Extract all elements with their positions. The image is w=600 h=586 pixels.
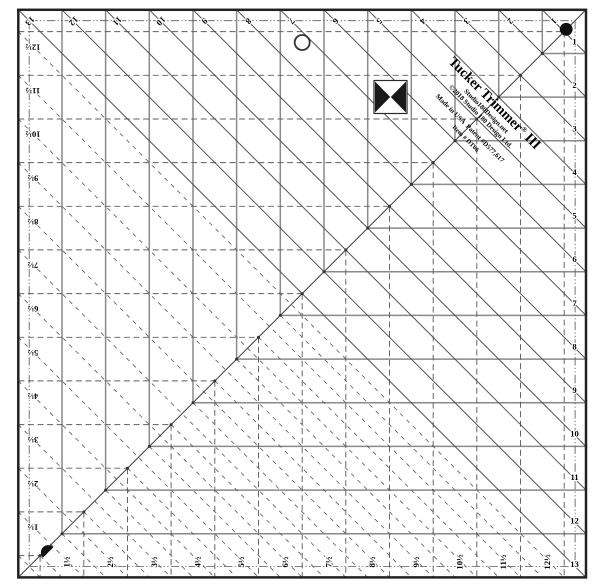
svg-text:3: 3 bbox=[572, 124, 576, 134]
svg-text:4: 4 bbox=[572, 167, 577, 177]
svg-text:3½: 3½ bbox=[149, 556, 159, 567]
svg-text:13: 13 bbox=[570, 559, 579, 569]
svg-text:1: 1 bbox=[572, 37, 576, 47]
svg-text:9½: 9½ bbox=[411, 556, 421, 567]
svg-text:6: 6 bbox=[572, 254, 577, 264]
svg-text:11½: 11½ bbox=[498, 554, 508, 569]
svg-text:12½: 12½ bbox=[25, 42, 41, 52]
svg-text:12: 12 bbox=[570, 516, 579, 526]
svg-text:4½: 4½ bbox=[27, 392, 38, 402]
svg-text:5½: 5½ bbox=[236, 556, 246, 567]
svg-text:10½: 10½ bbox=[25, 130, 41, 140]
svg-text:4½: 4½ bbox=[193, 556, 203, 567]
svg-text:10: 10 bbox=[570, 428, 579, 438]
svg-text:7½: 7½ bbox=[324, 556, 334, 567]
svg-text:5½: 5½ bbox=[27, 348, 38, 358]
svg-text:2: 2 bbox=[572, 80, 576, 90]
svg-text:5: 5 bbox=[572, 211, 576, 221]
svg-text:2½: 2½ bbox=[105, 556, 115, 567]
svg-text:6½: 6½ bbox=[27, 304, 38, 314]
svg-text:7½: 7½ bbox=[27, 261, 38, 271]
svg-text:8½: 8½ bbox=[27, 217, 38, 227]
svg-text:12½: 12½ bbox=[542, 554, 552, 570]
svg-text:3½: 3½ bbox=[27, 435, 38, 445]
svg-text:10½: 10½ bbox=[455, 554, 465, 570]
svg-text:8: 8 bbox=[572, 341, 577, 351]
svg-text:11½: 11½ bbox=[25, 86, 40, 96]
svg-text:7: 7 bbox=[572, 298, 577, 308]
svg-text:8½: 8½ bbox=[367, 556, 377, 567]
svg-text:1½: 1½ bbox=[27, 523, 38, 533]
svg-text:9: 9 bbox=[572, 385, 576, 395]
svg-text:2½: 2½ bbox=[27, 479, 38, 489]
svg-text:11: 11 bbox=[570, 472, 578, 482]
svg-text:6½: 6½ bbox=[280, 556, 290, 567]
svg-text:1½: 1½ bbox=[62, 556, 72, 567]
svg-text:9½: 9½ bbox=[27, 173, 38, 183]
